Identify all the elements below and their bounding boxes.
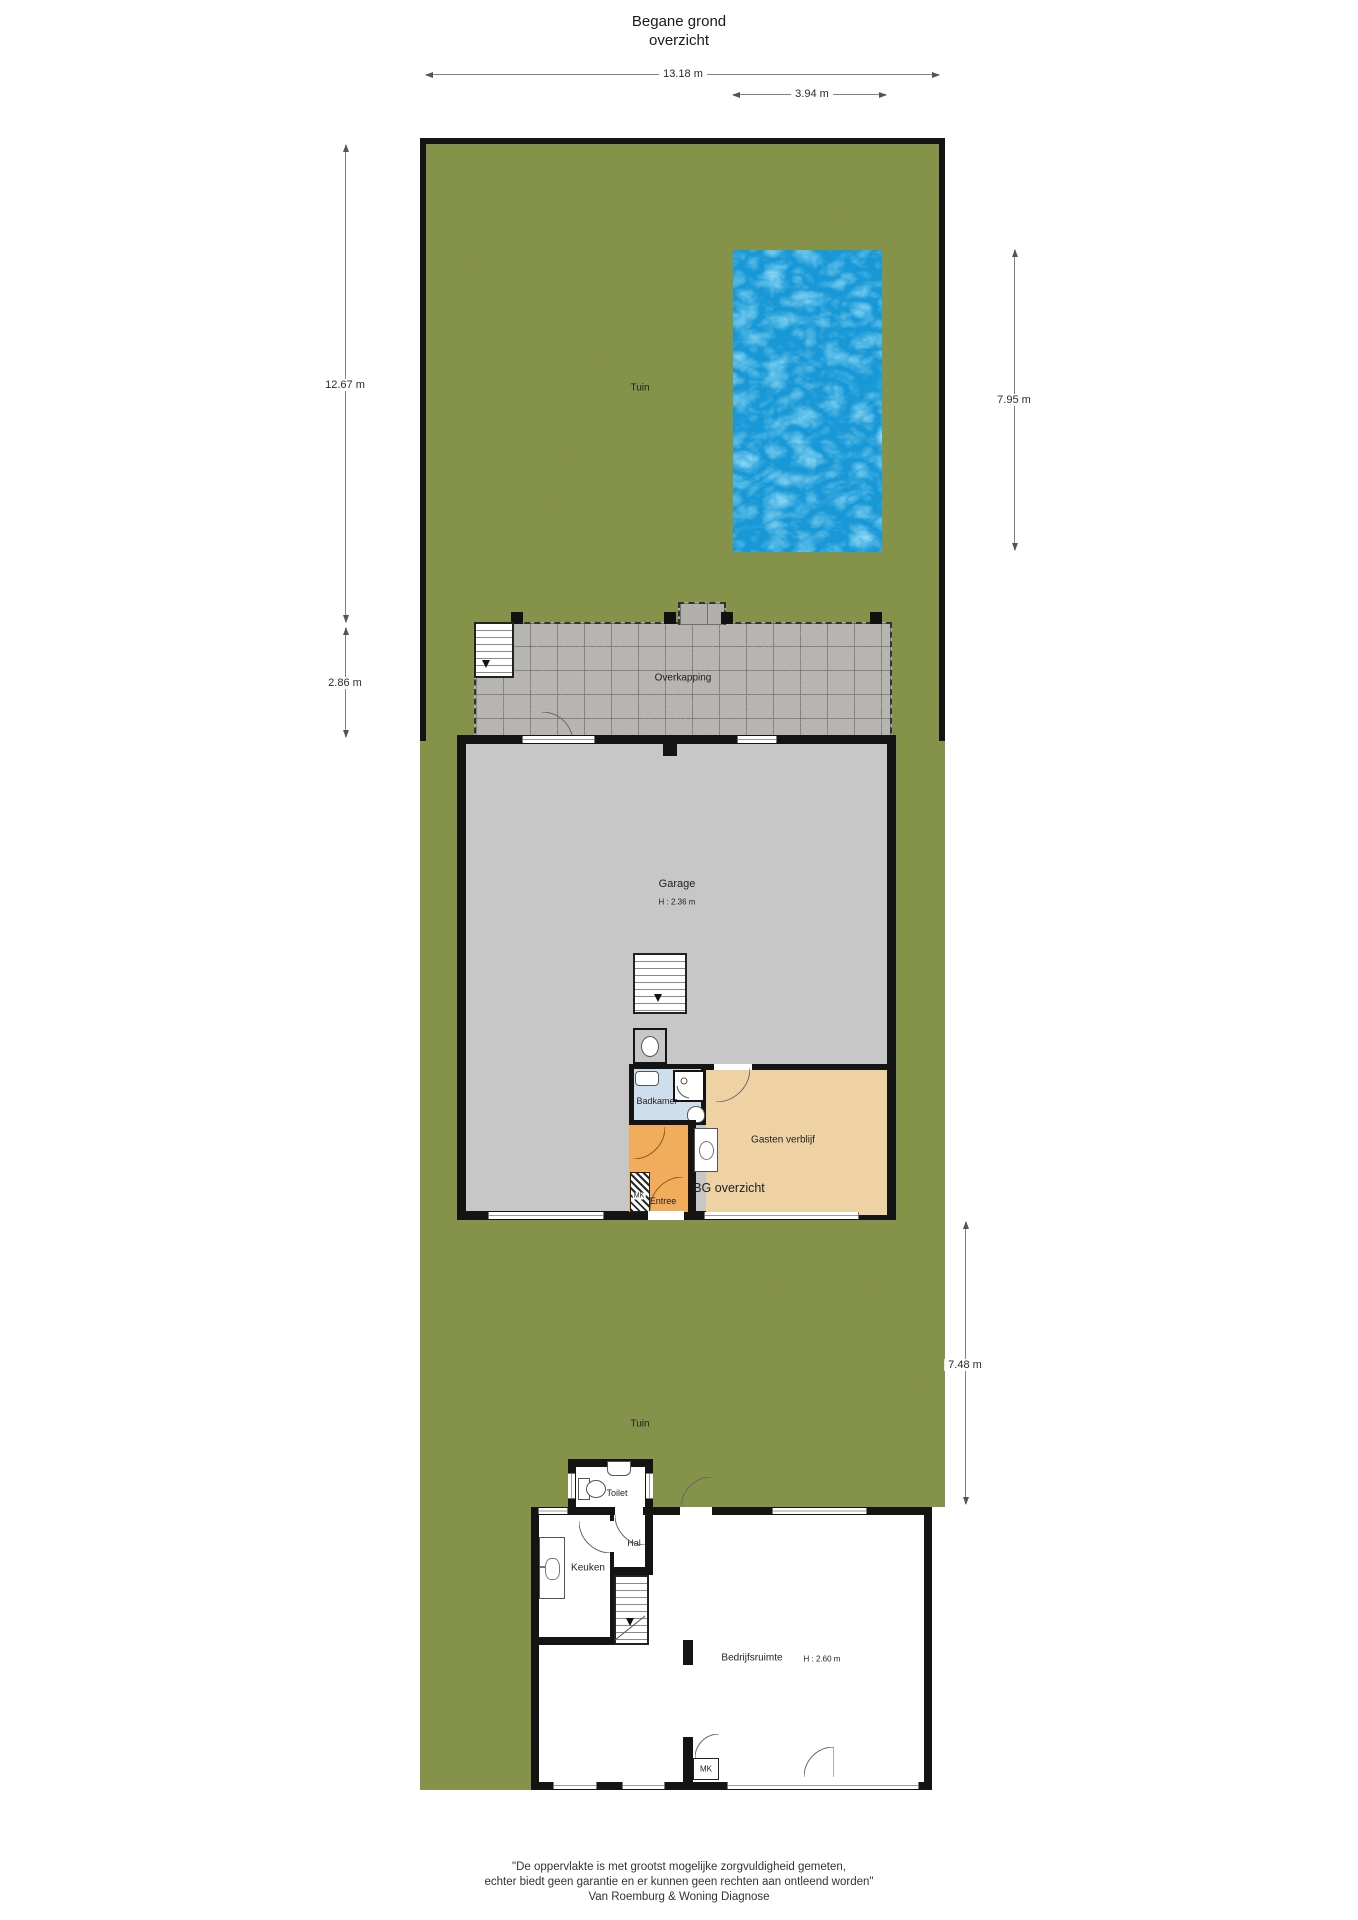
room-label-gasten-verblijf: Gasten verblijf	[751, 1135, 815, 1146]
garage-window-bottom-right	[704, 1212, 859, 1219]
stairs-diagonal	[615, 1576, 646, 1642]
toilet-window-left	[568, 1473, 575, 1499]
arrow-right-icon	[879, 92, 887, 98]
label-mk-bottom: MK	[700, 1765, 712, 1774]
dimension-label-garden-upper-height: 12.67 m	[321, 379, 369, 391]
arrow-left-icon	[732, 92, 740, 98]
dimension-label-plot-width: 13.18 m	[659, 68, 707, 80]
disclaimer-line3: Van Roemburg & Woning Diagnose	[0, 1890, 1358, 1905]
room-label-badkamer: Badkamer	[636, 1096, 677, 1106]
door-arc-bedrijf-entrance	[804, 1747, 834, 1777]
room-label-keuken: Keuken	[571, 1563, 605, 1574]
garden-wall-top	[420, 138, 945, 144]
washbasin-unit	[694, 1128, 718, 1172]
keuken-window-top	[538, 1508, 568, 1514]
door-arc-back-door	[681, 1477, 712, 1507]
garage-stairs	[633, 953, 687, 1014]
faucet-icon	[540, 1566, 546, 1568]
toilet-window-right	[646, 1473, 653, 1499]
disclaimer: "De oppervlakte is met grootst mogelijke…	[0, 1860, 1358, 1905]
arrow-left-icon	[425, 72, 433, 78]
arrow-up-icon	[1012, 249, 1018, 257]
toilet-bowl-icon	[586, 1480, 606, 1498]
hal-annex-opening	[615, 1507, 643, 1515]
dimension-label-garden-lower-height: 7.48 m	[944, 1359, 986, 1371]
disclaimer-line1: "De oppervlakte is met grootst mogelijke…	[0, 1860, 1358, 1875]
arrow-down-icon	[343, 730, 349, 738]
title-line1: Begane grond	[0, 12, 1358, 31]
garden-wall-left	[420, 138, 426, 741]
arrow-up-icon	[343, 144, 349, 152]
garage-wall-stub-top	[663, 744, 677, 756]
wall-stub-lower	[683, 1737, 693, 1782]
page-title: Begane grond overzicht	[0, 12, 1358, 50]
dimension-label-pool-height: 7.95 m	[993, 394, 1035, 406]
label-mk-garage: MK	[633, 1193, 646, 1200]
arrow-down-icon	[1012, 543, 1018, 551]
sink-icon	[635, 1071, 659, 1086]
disclaimer-line2: echter biedt geen garantie en er kunnen …	[0, 1875, 1358, 1890]
plan-label-bg-overzicht: BG overzicht	[693, 1181, 765, 1195]
bedrijf-window-bottom-3	[727, 1782, 919, 1789]
door-arc-gasten	[716, 1068, 750, 1102]
garden-wall-right	[939, 138, 945, 741]
garage-window-top-right	[737, 736, 777, 743]
wall-stub-upper	[683, 1640, 693, 1665]
swimming-pool	[733, 250, 882, 552]
shower-curtain-arc	[675, 1072, 703, 1100]
room-label-entree: Entree	[650, 1196, 677, 1206]
basin-icon	[699, 1141, 714, 1160]
room-label-toilet: Toilet	[606, 1488, 627, 1498]
arrow-down-icon	[343, 615, 349, 623]
sink-icon	[607, 1461, 631, 1476]
room-label-tuin-lower: Tuin	[630, 1419, 649, 1430]
door-arc-entree-top	[633, 1127, 665, 1159]
overkapping-bumpout	[678, 602, 726, 625]
carport-post	[870, 612, 882, 624]
title-line2: overzicht	[0, 31, 1358, 50]
bedrijf-window-bottom-2	[622, 1782, 665, 1789]
room-label-bedrijfsruimte: Bedrijfsruimte	[721, 1653, 782, 1664]
bedrijfsruimte-ceiling-height: H : 2.60 m	[804, 1655, 841, 1664]
arrow-right-icon	[932, 72, 940, 78]
bedrijfsruimte-window-top	[772, 1508, 867, 1514]
hal-stairs-arrow	[626, 1618, 634, 1626]
arrow-down-icon	[963, 1497, 969, 1505]
dimension-label-pool-width: 3.94 m	[791, 88, 833, 100]
toilet-icon	[641, 1036, 659, 1057]
hal-bottom-wall	[613, 1567, 653, 1575]
door-arc-hal	[615, 1515, 645, 1545]
garage-window-top-left	[522, 736, 595, 743]
bedrijf-window-bottom-1	[553, 1782, 597, 1789]
door-arc-keuken	[579, 1521, 611, 1553]
room-label-overkapping: Overkapping	[655, 673, 712, 684]
room-label-garage: Garage	[659, 878, 696, 890]
carport-post	[664, 612, 676, 624]
room-label-tuin-upper: Tuin	[630, 383, 649, 394]
kitchen-counter	[539, 1537, 565, 1599]
stairs-direction-arrow	[482, 660, 490, 668]
garage-stairs-arrow	[654, 994, 662, 1002]
keuken-bottom-wall	[537, 1637, 614, 1645]
floor-plan: Begane grond overzicht Tuin Overkapping …	[0, 0, 1358, 1920]
door-arc-mk	[695, 1734, 719, 1758]
carport-post	[721, 612, 733, 624]
garage-ceiling-height: H : 2.36 m	[659, 898, 696, 907]
hal-bedrijf-wall	[645, 1515, 653, 1575]
kitchen-sink-icon	[545, 1558, 560, 1580]
garden-strip-left	[420, 1507, 531, 1790]
back-door-gap	[680, 1507, 712, 1515]
garden-stairs	[474, 622, 514, 678]
hal-stairs	[614, 1575, 649, 1645]
arrow-up-icon	[963, 1221, 969, 1229]
entree-door-gap	[648, 1211, 684, 1220]
shower-icon	[673, 1070, 705, 1102]
arrow-up-icon	[343, 627, 349, 635]
dimension-label-overkapping-height: 2.86 m	[324, 677, 366, 689]
garage-window-bottom-left	[488, 1212, 604, 1219]
